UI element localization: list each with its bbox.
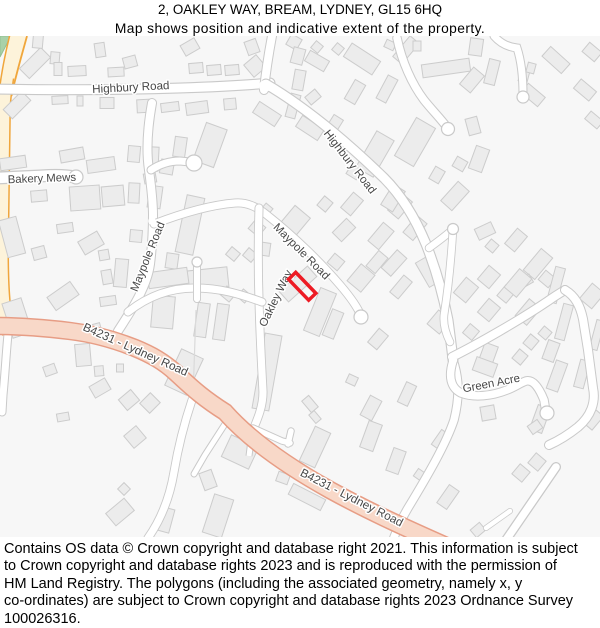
- svg-text:Bakery Mews: Bakery Mews: [8, 172, 77, 186]
